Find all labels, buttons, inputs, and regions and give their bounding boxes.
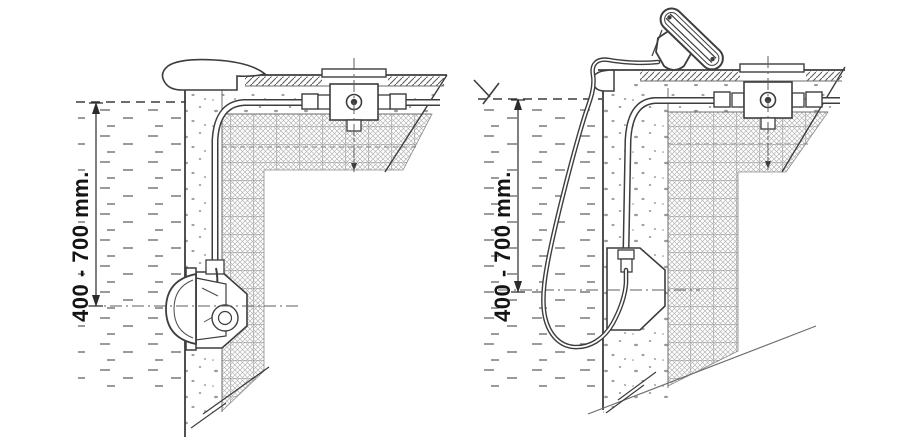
box-nipple xyxy=(318,95,330,109)
removed-light-fixture xyxy=(652,4,727,74)
masonry-blocks xyxy=(222,114,432,411)
paving-hatch xyxy=(245,77,322,86)
diagram-service: 400 - 700 mm. xyxy=(474,4,845,414)
conduit-coupling xyxy=(714,92,730,107)
cable-coil-inner xyxy=(219,312,232,325)
technical-drawing-canvas: 400 - 700 mm. xyxy=(0,0,920,440)
water-texture xyxy=(78,106,184,388)
diagram-installed: 400 - 700 mm. xyxy=(68,58,447,437)
dimension-label: 400 - 700 mm. xyxy=(490,171,515,322)
box-nipple xyxy=(792,93,804,107)
deck-edge-bullnose xyxy=(593,70,614,91)
conduit-coupling xyxy=(302,94,318,109)
water-level-mark xyxy=(474,80,499,104)
box-nipple xyxy=(378,95,390,109)
paving-hatch xyxy=(640,72,740,81)
conduit-coupling xyxy=(390,94,406,109)
fixture-bracket xyxy=(206,260,224,274)
paving-hatch xyxy=(388,77,444,86)
box-nipple xyxy=(732,93,744,107)
masonry-blocks xyxy=(668,112,828,386)
paving-hatch xyxy=(806,72,842,81)
dimension-label: 400 - 700 mm. xyxy=(68,171,93,322)
conduit-coupling xyxy=(806,92,822,107)
junction-box-lid xyxy=(740,64,804,72)
pool-light-installation-diagram: 400 - 700 mm. xyxy=(0,0,920,440)
